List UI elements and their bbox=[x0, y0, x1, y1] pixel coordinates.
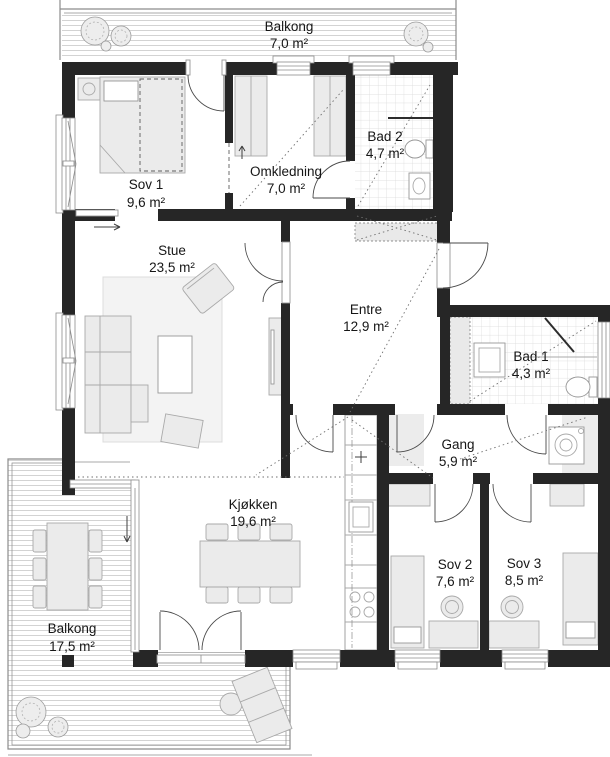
bed-icon bbox=[563, 553, 598, 645]
window bbox=[56, 115, 76, 213]
room-label-sov2-area: 7,6 m² bbox=[436, 574, 475, 589]
washing-machine-icon bbox=[549, 427, 584, 464]
window bbox=[293, 650, 340, 669]
balcony-top bbox=[60, 0, 456, 60]
room-label-bad2-name: Bad 2 bbox=[367, 129, 402, 144]
room-label-balkong-top-name: Balkong bbox=[265, 19, 314, 34]
room-label-sov3-name: Sov 3 bbox=[507, 556, 542, 571]
room-label-gang-area: 5,9 m² bbox=[439, 454, 478, 469]
room-label-balkong-bottom-area: 17,5 m² bbox=[49, 639, 95, 654]
entre-shaft-zone bbox=[450, 317, 470, 404]
room-label-entre-name: Entre bbox=[350, 302, 382, 317]
room-label-sov2-name: Sov 2 bbox=[438, 557, 473, 572]
sink-cabinet-icon bbox=[474, 343, 505, 377]
room-label-balkong-top-area: 7,0 m² bbox=[270, 36, 309, 51]
nightstand-icon bbox=[78, 78, 100, 100]
door-main-entrance bbox=[437, 243, 488, 288]
room-label-bad2-area: 4,7 m² bbox=[366, 146, 405, 161]
entre-wardrobe-zone bbox=[355, 223, 443, 241]
window bbox=[598, 322, 610, 398]
wardrobe-icon bbox=[382, 484, 430, 506]
room-label-entre-area: 12,9 m² bbox=[343, 319, 389, 334]
window bbox=[273, 56, 314, 75]
room-label-stue-area: 23,5 m² bbox=[149, 260, 195, 275]
desk-icon bbox=[429, 621, 478, 648]
bed-icon bbox=[391, 556, 424, 648]
window bbox=[395, 650, 440, 669]
room-label-kjokken-name: Kjøkken bbox=[229, 497, 278, 512]
balcony-column bbox=[62, 655, 74, 667]
room-label-omkledning-area: 7,0 m² bbox=[267, 181, 306, 196]
chair-icon bbox=[501, 596, 523, 618]
toilet-icon bbox=[566, 377, 597, 397]
sink-icon bbox=[349, 502, 373, 532]
double-bed-icon bbox=[100, 77, 185, 173]
desk-icon bbox=[489, 621, 539, 648]
outdoor-dining-table bbox=[33, 523, 102, 610]
room-label-sov1-name: Sov 1 bbox=[129, 177, 164, 192]
footstool-icon bbox=[161, 414, 203, 448]
room-label-bad1-area: 4,3 m² bbox=[512, 366, 551, 381]
window bbox=[56, 313, 76, 410]
toilet-icon bbox=[405, 140, 433, 158]
kitchen-counter bbox=[345, 415, 377, 650]
room-label-sov1-area: 9,6 m² bbox=[127, 195, 166, 210]
washbasin-icon bbox=[409, 173, 430, 199]
dining-table-icon bbox=[200, 524, 300, 603]
room-label-kjokken-area: 19,6 m² bbox=[230, 514, 276, 529]
window bbox=[502, 650, 548, 669]
wardrobe-icon bbox=[550, 484, 584, 506]
chair-icon bbox=[441, 596, 463, 618]
coffee-table-icon bbox=[158, 336, 192, 393]
room-label-omkledning-name: Omkledning bbox=[250, 164, 322, 179]
room-label-bad1-name: Bad 1 bbox=[513, 349, 548, 364]
floor-plan-svg: Balkong 7,0 m² Sov 1 9,6 m² Omkledning 7… bbox=[0, 0, 610, 757]
floor-plan: Balkong 7,0 m² Sov 1 9,6 m² Omkledning 7… bbox=[0, 0, 610, 757]
window bbox=[349, 56, 394, 75]
room-label-gang-name: Gang bbox=[441, 437, 474, 452]
room-label-sov3-area: 8,5 m² bbox=[505, 573, 544, 588]
room-label-balkong-bottom-name: Balkong bbox=[48, 621, 97, 636]
room-label-stue-name: Stue bbox=[158, 243, 186, 258]
